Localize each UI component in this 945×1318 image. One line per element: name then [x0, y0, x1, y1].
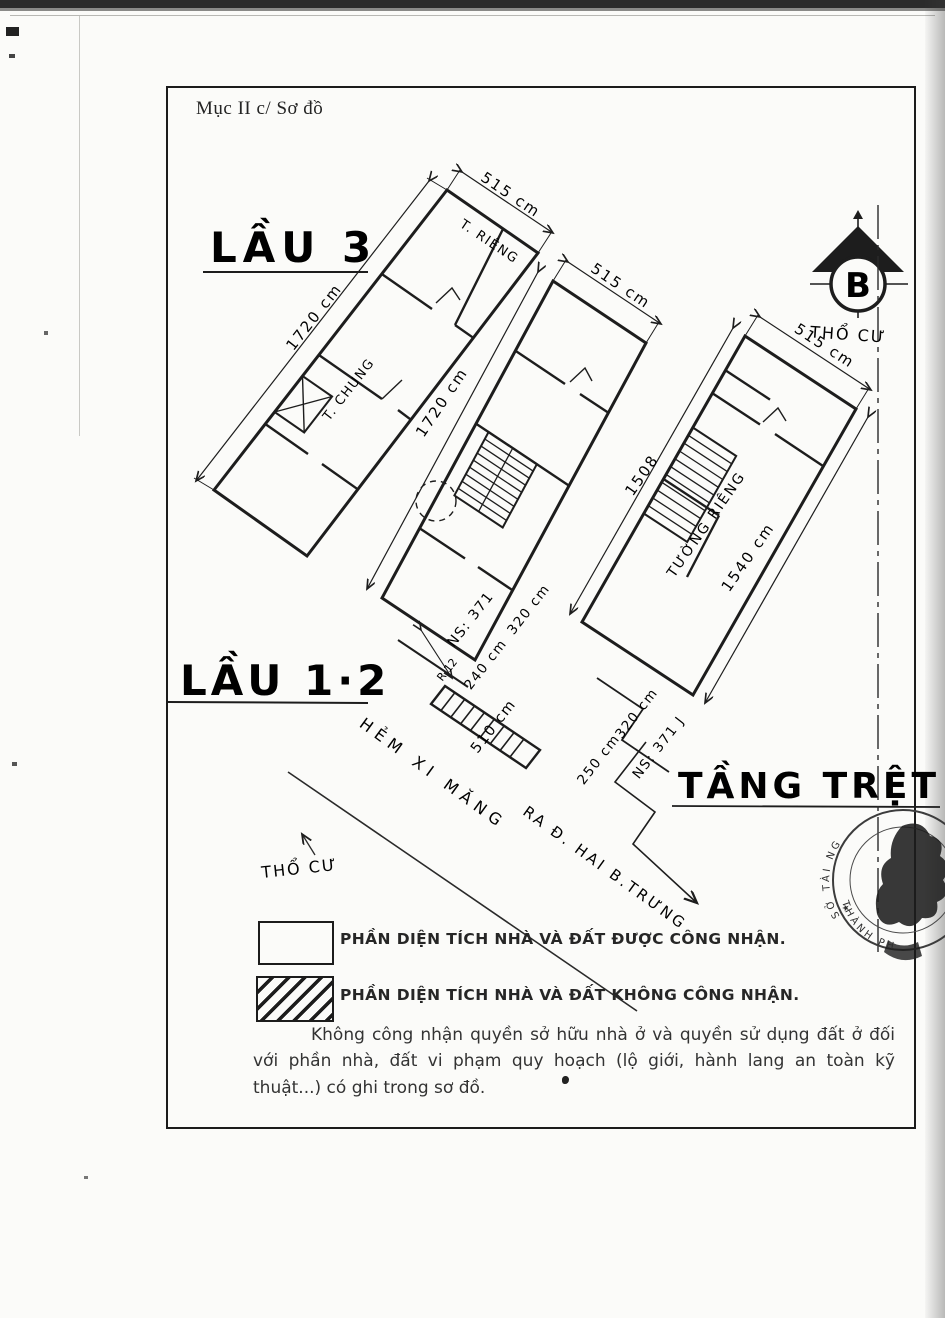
alley-label-2: RA Đ. HAI B.TRƯNG [520, 802, 691, 933]
title-lau12-underline [168, 702, 368, 703]
legend-recognized-text: PHẦN DIỆN TÍCH NHÀ VÀ ĐẤT ĐƯỢC CÔNG NHẬN… [340, 930, 900, 948]
stairs-lau12 [454, 432, 537, 528]
floor-plan-drawing: 515 cm T. RIÊNG 1720 cm T. CHUNG [0, 0, 945, 1318]
legend-swatch-recognized [258, 921, 334, 965]
tho-cu-arrow [302, 834, 315, 855]
compass-letter: B [845, 266, 871, 306]
title-lau12: LẦU 1·2 [180, 650, 390, 705]
dim-lau12-width: 515 cm [587, 259, 654, 312]
scanned-document-page: Mục II c/ Sơ đồ [0, 0, 945, 1318]
official-stamp: SỞ TÀI NG THÀNH PHỐ ★ [0, 0, 945, 960]
title-tang-tret: TẦNG TRỆT [678, 760, 940, 807]
north-compass-icon: B [810, 210, 908, 318]
alley-line [288, 772, 637, 1011]
legend-swatch-not-recognized [256, 976, 334, 1022]
dim-lau3-width: 515 cm [477, 168, 544, 221]
shaft-box-icon [275, 376, 333, 433]
dim-lau12-length: 1720 cm [412, 364, 472, 440]
legend-not-recognized-text: PHẦN DIỆN TÍCH NHÀ VÀ ĐẤT KHÔNG CÔNG NHẬ… [340, 986, 900, 1004]
dim-tret-1540: 1540 cm [718, 519, 779, 595]
stairs-tang-tret [644, 428, 736, 543]
site-tho-cu-label: THỔ CƯ [259, 853, 338, 882]
dim-lau12-240: 240 cm [461, 636, 510, 693]
title-lau3: LẦU 3 [210, 217, 377, 272]
dim-lau3-length: 1720 cm [282, 280, 345, 354]
note-paragraph: Không công nhận quyền sở hữu nhà ở và qu… [253, 1022, 895, 1101]
dim-lau12-ns: NS: 371 [444, 589, 497, 651]
title-tang-tret-underline [672, 806, 940, 807]
